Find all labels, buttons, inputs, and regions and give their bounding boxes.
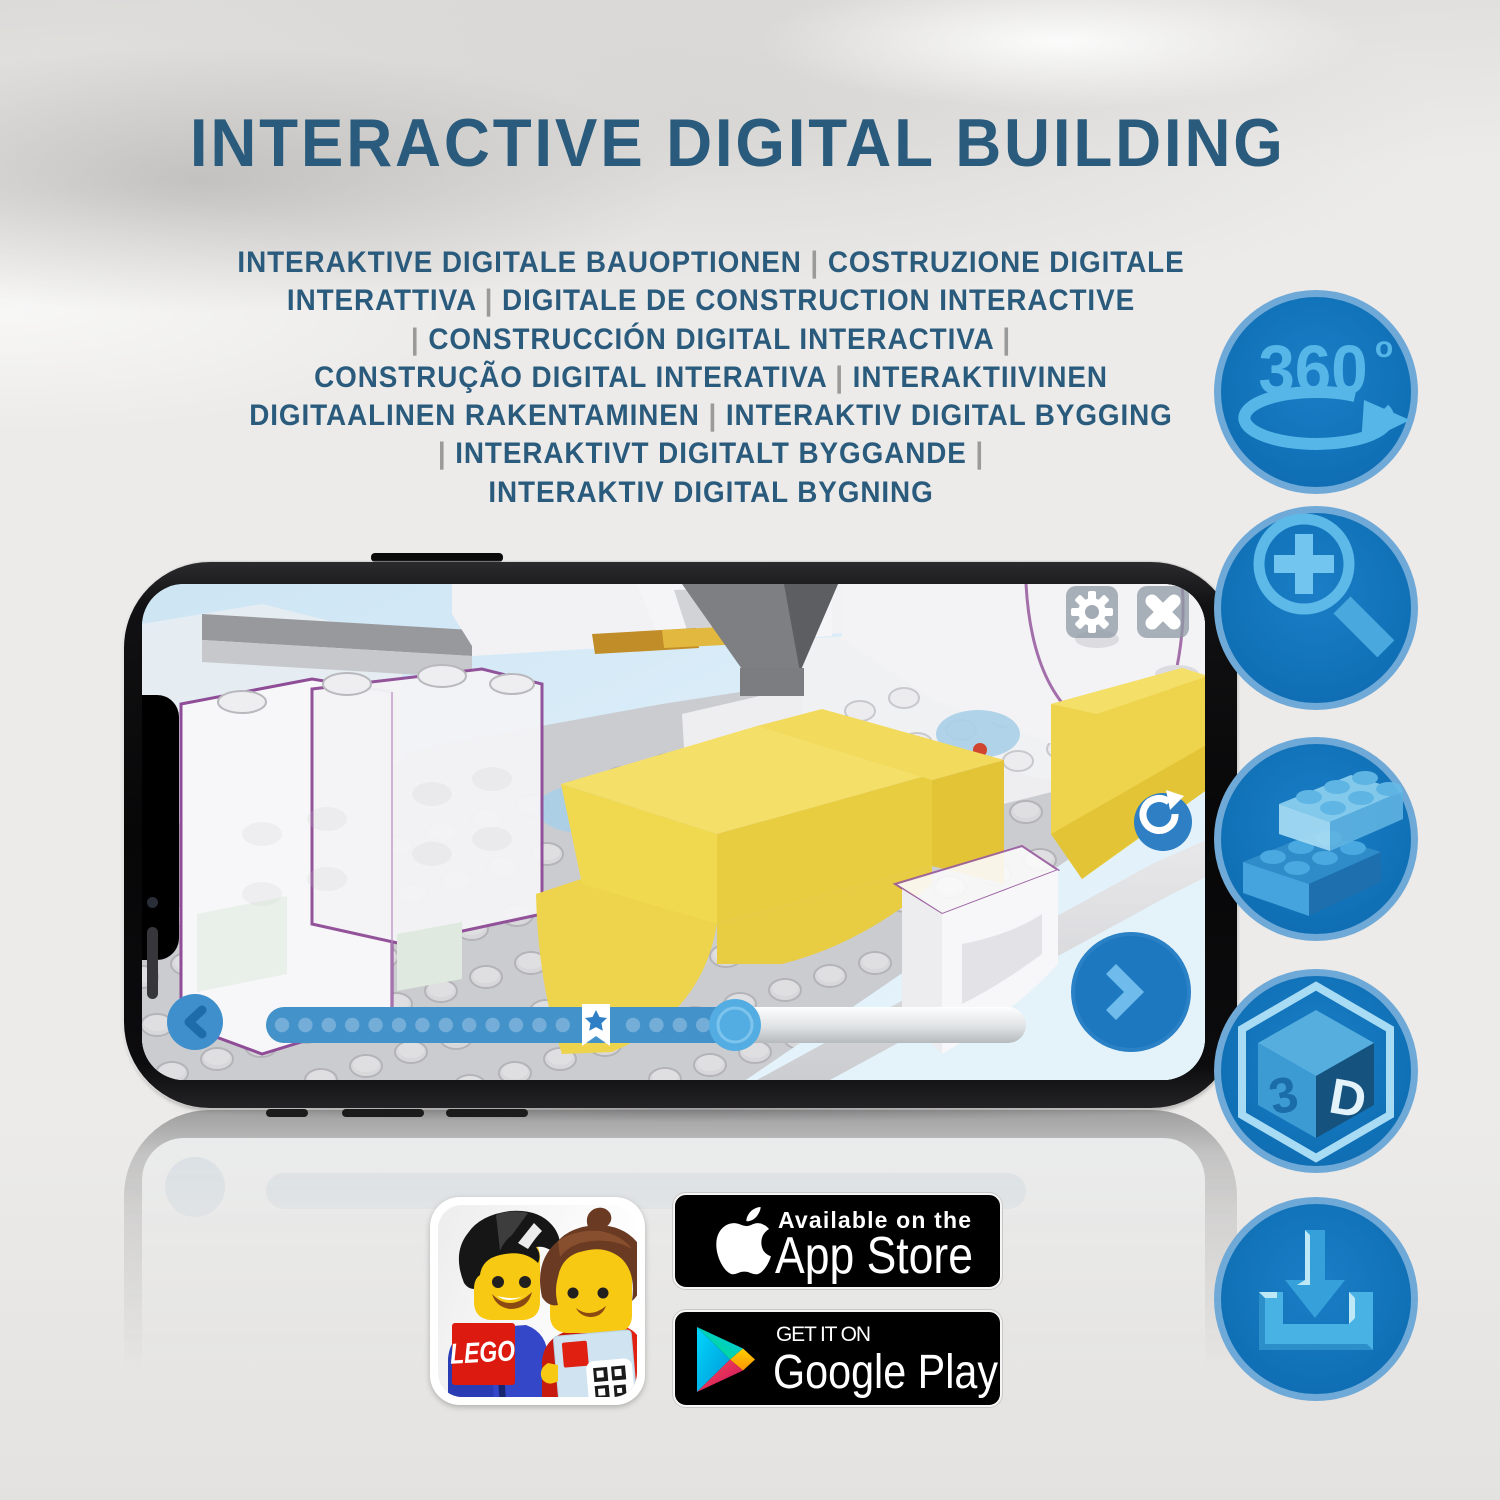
svg-text:o: o bbox=[1375, 331, 1393, 364]
svg-text:Google Play: Google Play bbox=[773, 1346, 998, 1399]
svg-text:App Store: App Store bbox=[775, 1227, 973, 1285]
svg-text:LEGO: LEGO bbox=[449, 1334, 516, 1370]
svg-text:GET IT ON: GET IT ON bbox=[776, 1323, 871, 1346]
svg-text:360: 360 bbox=[1258, 331, 1367, 408]
